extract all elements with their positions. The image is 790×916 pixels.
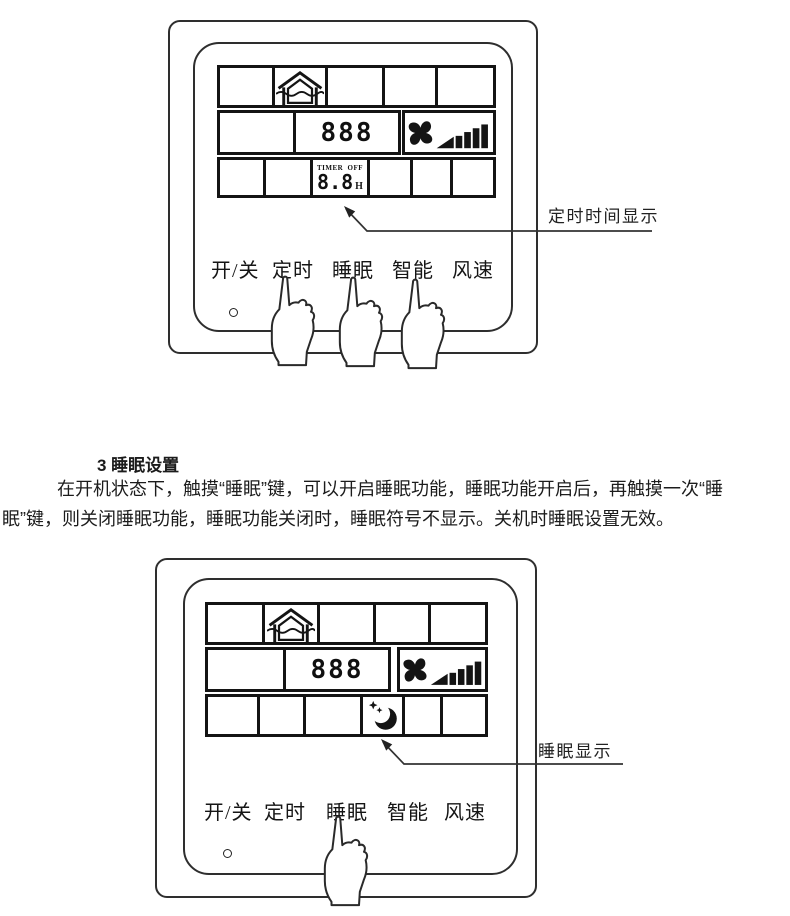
display-grid-row — [205, 694, 488, 737]
display-cell — [205, 694, 260, 737]
fan-speed-display — [397, 647, 488, 692]
pointing-hand-icon — [266, 275, 316, 367]
display-cell — [272, 65, 328, 108]
temperature-display: 888 — [293, 110, 401, 155]
annotation-label-timer: 定时时间显示 — [548, 202, 659, 227]
display-cell — [262, 602, 320, 645]
fan-speed-display — [402, 110, 496, 155]
display-cell — [303, 694, 363, 737]
temperature-value: 888 — [321, 118, 374, 148]
display-grid-row: 888 — [205, 647, 488, 692]
touch-key-fanspeed: 风速 — [452, 254, 494, 283]
house-ventilation-icon — [276, 70, 324, 109]
timer-display: TIMER OFF 8.8 H — [310, 157, 370, 198]
temperature-display: 888 — [283, 647, 391, 692]
display-cell — [428, 602, 488, 645]
display-cell — [440, 694, 488, 737]
display-grid-row: TIMER OFF 8.8 H — [217, 157, 496, 198]
display-cell — [373, 602, 431, 645]
display-cell — [410, 157, 453, 198]
pointing-hand-icon — [334, 276, 384, 368]
pointing-hand-icon — [396, 278, 446, 370]
display-cell — [367, 157, 413, 198]
touch-key-fanspeed: 风速 — [444, 796, 486, 825]
indicator-led — [223, 849, 232, 858]
display-cell — [402, 694, 443, 737]
sleep-moon-icon — [367, 698, 399, 734]
fan-speed-icon — [401, 651, 485, 689]
display-cell — [205, 647, 286, 692]
timer-value: 8.8 — [317, 172, 353, 192]
display-cell — [382, 65, 438, 108]
timer-unit: H — [355, 182, 363, 192]
temperature-value: 888 — [311, 655, 364, 685]
touch-key-power: 开/关 — [204, 796, 253, 825]
manual-page: 888 — [0, 0, 790, 916]
touch-key-smart: 智能 — [387, 796, 429, 825]
display-cell — [205, 602, 265, 645]
display-cell — [435, 65, 496, 108]
display-grid-row — [205, 602, 488, 645]
paragraph-line-2: 眠”键，则关闭睡眠功能，睡眠功能关闭时，睡眠符号不显示。关机时睡眠设置无效。 — [2, 505, 674, 531]
display-cell — [450, 157, 496, 198]
display-cell — [325, 65, 385, 108]
display-grid-row — [217, 65, 496, 108]
touch-key-timer: 定时 — [264, 796, 306, 825]
section-heading: 3 睡眠设置 — [97, 451, 179, 476]
display-cell — [317, 602, 376, 645]
indicator-led — [229, 308, 238, 317]
house-ventilation-icon — [267, 607, 315, 646]
touch-key-power: 开/关 — [211, 254, 260, 283]
sleep-indicator-cell — [360, 694, 405, 737]
display-cell — [217, 110, 296, 155]
display-cell — [257, 694, 306, 737]
display-cell — [217, 157, 266, 198]
fan-speed-icon — [406, 114, 492, 152]
pointing-hand-icon — [319, 815, 369, 907]
paragraph-line-1: 在开机状态下，触摸“睡眠”键，可以开启睡眠功能，睡眠功能开启后，再触摸一次“睡 — [57, 475, 723, 501]
display-grid-row: 888 — [217, 110, 496, 155]
display-cell — [217, 65, 275, 108]
display-cell — [263, 157, 313, 198]
annotation-label-sleep: 睡眠显示 — [538, 737, 612, 762]
